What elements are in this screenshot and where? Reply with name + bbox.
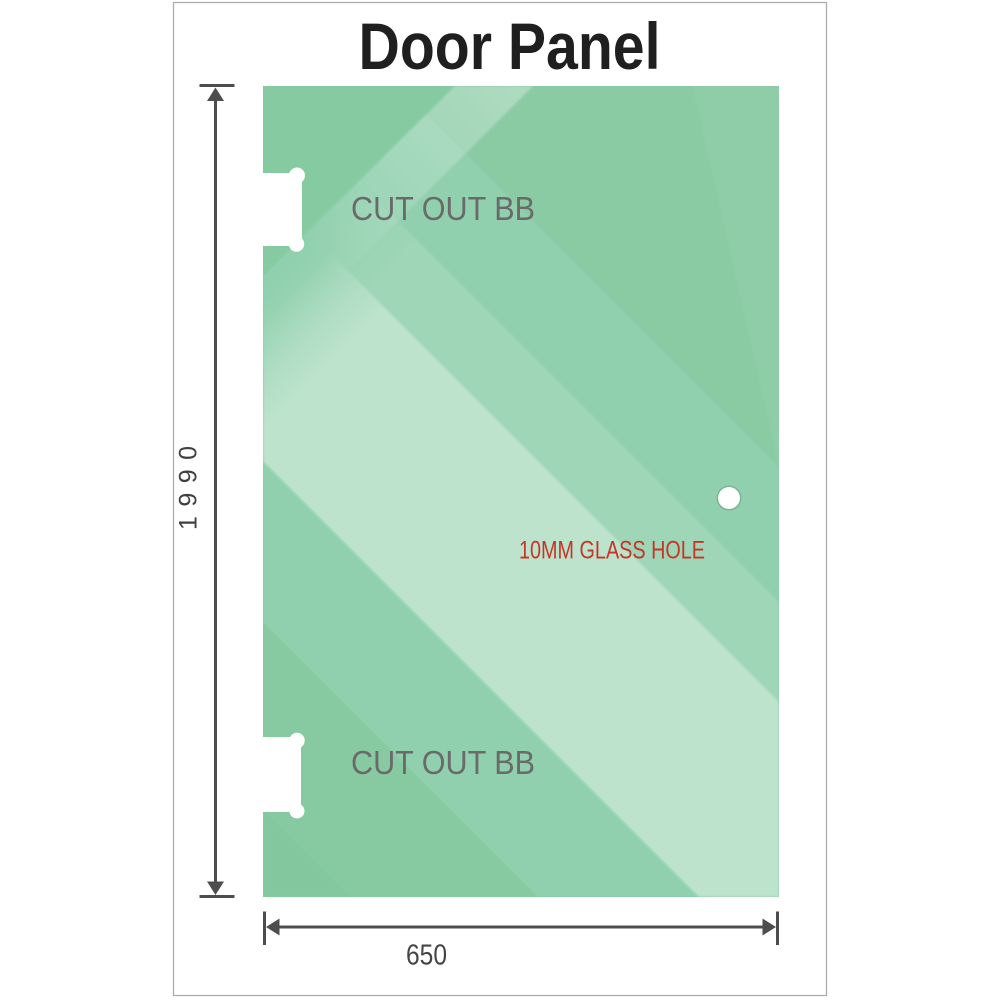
svg-text:Door Panel: Door Panel: [359, 9, 661, 83]
svg-text:CUT OUT BB: CUT OUT BB: [351, 190, 535, 227]
svg-text:CUT OUT BB: CUT OUT BB: [351, 744, 535, 781]
svg-text:650: 650: [406, 940, 447, 972]
svg-text:10MM GLASS HOLE: 10MM GLASS HOLE: [519, 537, 705, 565]
